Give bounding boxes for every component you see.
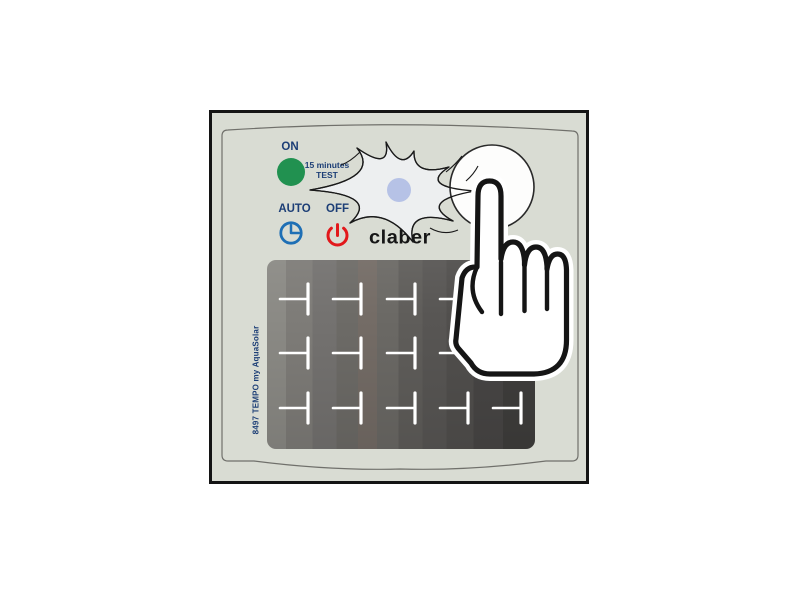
led-dot-icon bbox=[387, 178, 411, 202]
manual-illustration: ON 15 minutes TEST AUTO OFF claber 8497 … bbox=[0, 0, 800, 600]
test-action-art bbox=[0, 0, 800, 600]
